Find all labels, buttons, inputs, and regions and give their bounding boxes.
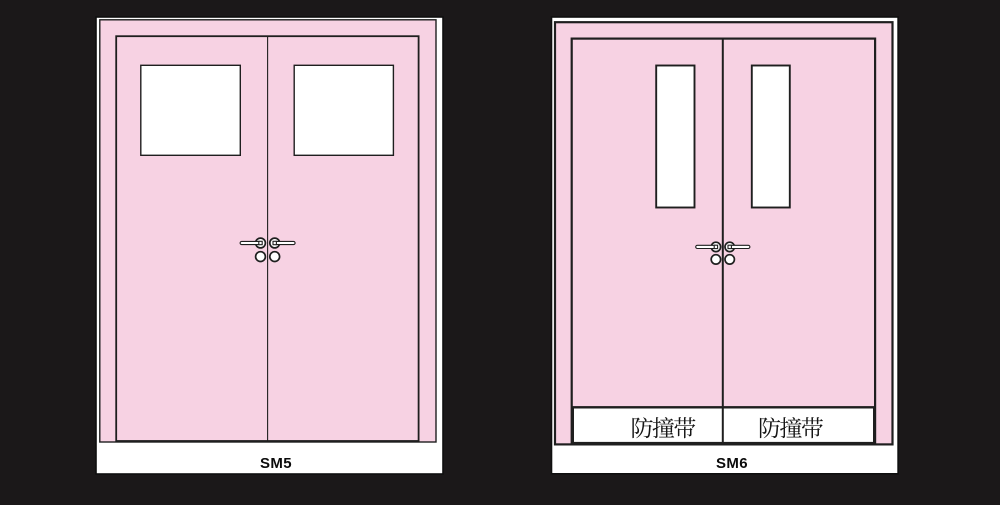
svg-text:SM5: SM5: [260, 455, 292, 472]
svg-text:SM6: SM6: [716, 455, 748, 472]
